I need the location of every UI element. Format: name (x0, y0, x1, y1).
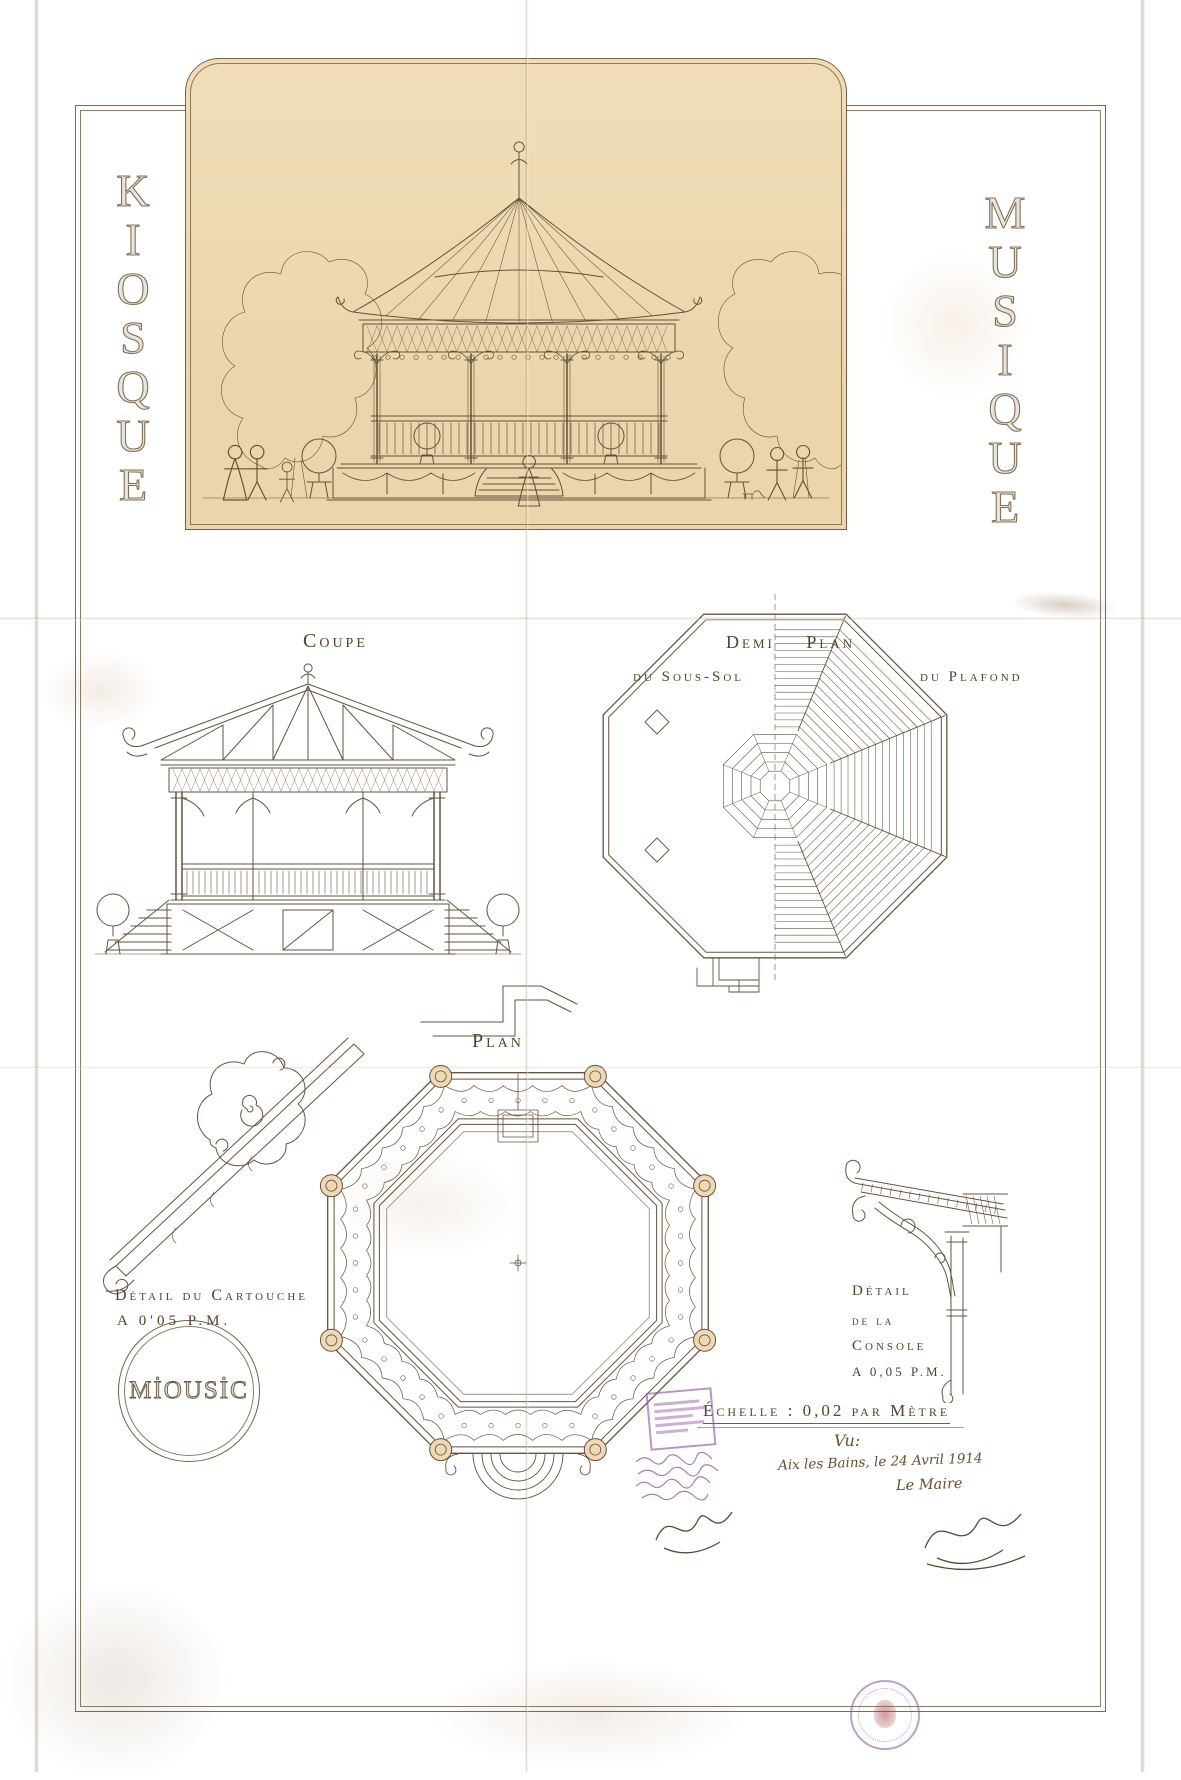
paper-fold-right (1140, 0, 1145, 1772)
approval-stamp (646, 1387, 717, 1451)
maire-signature (915, 1500, 1033, 1572)
title-letter: E (991, 482, 1019, 531)
title-letter: S (120, 313, 146, 362)
elevation-drawing (191, 64, 841, 524)
figure-man (793, 446, 813, 499)
figure-man (247, 445, 268, 500)
vu-annotation: Vu: (834, 1431, 860, 1450)
title-letter: K (116, 166, 149, 215)
stamp-text-line (655, 1414, 693, 1420)
architect-logo: MİOUSİC (118, 1320, 260, 1462)
stamp-text-line (654, 1399, 700, 1406)
title-letter: S (992, 286, 1018, 335)
title-musique: M U S I Q U E (969, 188, 1041, 531)
round-seal-stamp (850, 1680, 920, 1750)
figure-man (767, 448, 787, 501)
title-letter: Q (116, 362, 149, 411)
blueprint-sheet: { "sheet": { "side_titles": { "left_word… (0, 0, 1181, 1772)
title-kiosque: K I O S Q U E (97, 166, 169, 509)
paper-fold-left (34, 0, 39, 1772)
console-detail-drawing (833, 1138, 1008, 1403)
seal-center-mark (874, 1700, 896, 1728)
demi-plan-entry-corridor (415, 980, 585, 1050)
elevation-panel (185, 58, 847, 530)
title-letter: I (997, 335, 1012, 384)
title-letter: Q (988, 384, 1021, 433)
stamp-text-line (654, 1406, 705, 1413)
logo-text: MİOUSİC (129, 1377, 249, 1405)
stamp-text-line (655, 1420, 704, 1427)
title-letter: E (119, 460, 147, 509)
title-letter: U (116, 411, 149, 460)
title-letter: U (988, 237, 1021, 286)
title-letter: M (985, 188, 1026, 237)
title-letter: I (125, 215, 140, 264)
title-letter: O (116, 264, 149, 313)
demi-plan-drawing (563, 588, 999, 1000)
official-signature (648, 1496, 740, 1558)
maire-annotation: Le Maire (896, 1476, 963, 1494)
stamp-text-line (656, 1428, 689, 1434)
title-letter: U (988, 433, 1021, 482)
coupe-drawing (83, 648, 533, 974)
scale-note: Échelle : 0,02 par Mètre (703, 1401, 950, 1421)
